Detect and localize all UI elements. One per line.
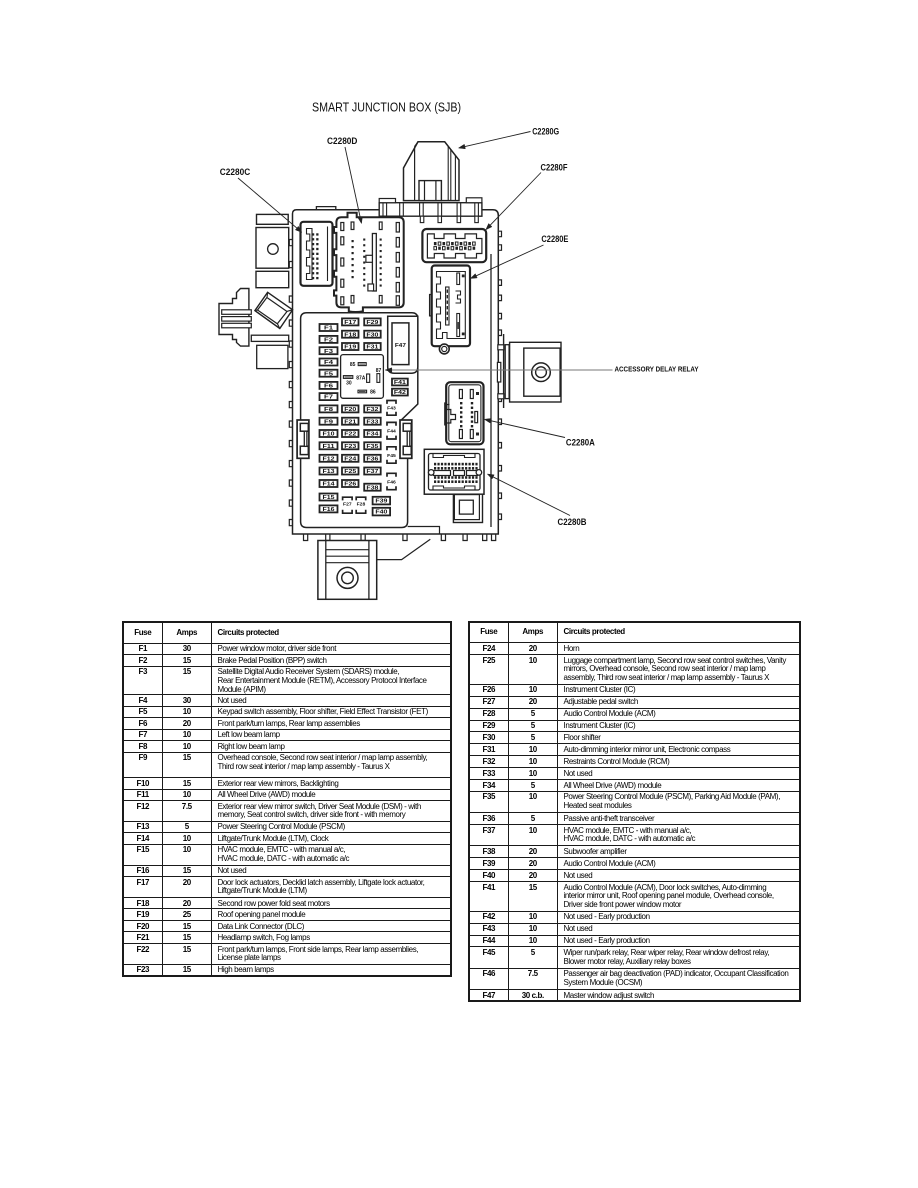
svg-text:F11: F11 — [323, 444, 335, 450]
svg-text:C2280E: C2280E — [541, 234, 568, 245]
svg-text:C2280G: C2280G — [532, 126, 559, 137]
svg-text:F41: F41 — [394, 380, 406, 386]
svg-text:F29: F29 — [366, 320, 378, 326]
svg-text:F44: F44 — [387, 429, 396, 434]
svg-text:F18: F18 — [344, 332, 356, 338]
svg-text:F20: F20 — [344, 407, 356, 413]
svg-text:87A: 87A — [356, 375, 366, 381]
svg-text:F1: F1 — [324, 326, 333, 332]
svg-text:F13: F13 — [323, 469, 335, 475]
svg-text:F34: F34 — [366, 432, 379, 438]
svg-text:C2280C: C2280C — [220, 167, 251, 178]
svg-text:ACCESSORY DELAY RELAY: ACCESSORY DELAY RELAY — [615, 364, 699, 373]
svg-text:C2280F: C2280F — [541, 163, 568, 174]
svg-text:F4: F4 — [324, 360, 334, 366]
svg-text:F26: F26 — [344, 482, 356, 488]
svg-text:F45: F45 — [387, 453, 396, 458]
svg-text:85: 85 — [350, 362, 356, 368]
svg-text:F28: F28 — [357, 502, 366, 507]
svg-text:F25: F25 — [344, 469, 356, 475]
svg-text:F19: F19 — [344, 345, 356, 351]
svg-text:F12: F12 — [323, 456, 335, 462]
svg-text:F9: F9 — [324, 419, 333, 425]
svg-text:F31: F31 — [366, 345, 378, 351]
svg-text:F14: F14 — [323, 482, 336, 488]
svg-text:F16: F16 — [323, 507, 335, 513]
svg-text:C2280B: C2280B — [558, 517, 587, 528]
svg-text:F10: F10 — [323, 432, 335, 438]
svg-text:F39: F39 — [375, 499, 387, 505]
svg-text:86: 86 — [370, 390, 376, 396]
svg-text:F3: F3 — [324, 349, 333, 355]
svg-text:30: 30 — [346, 381, 352, 387]
svg-text:F30: F30 — [366, 332, 378, 338]
svg-text:F42: F42 — [394, 390, 406, 396]
svg-text:C2280A: C2280A — [566, 437, 595, 448]
svg-text:F6: F6 — [324, 384, 333, 390]
svg-text:87: 87 — [376, 368, 382, 374]
svg-text:F24: F24 — [344, 456, 357, 462]
svg-text:SMART JUNCTION BOX (SJB): SMART JUNCTION BOX (SJB) — [312, 100, 461, 115]
svg-text:F33: F33 — [366, 419, 378, 425]
svg-text:F43: F43 — [387, 406, 396, 411]
svg-text:F32: F32 — [366, 407, 378, 413]
svg-text:F35: F35 — [366, 444, 378, 450]
svg-text:F40: F40 — [375, 510, 387, 516]
svg-text:F46: F46 — [387, 479, 396, 484]
svg-text:F47: F47 — [395, 343, 406, 349]
svg-text:F8: F8 — [324, 407, 333, 413]
svg-text:F36: F36 — [366, 456, 378, 462]
svg-text:F38: F38 — [366, 485, 378, 491]
svg-text:F22: F22 — [344, 432, 356, 438]
svg-text:F15: F15 — [323, 495, 335, 501]
svg-text:F17: F17 — [344, 320, 356, 326]
svg-text:F27: F27 — [343, 502, 352, 507]
svg-text:F2: F2 — [324, 338, 333, 344]
svg-text:F7: F7 — [324, 395, 333, 401]
svg-text:F5: F5 — [324, 371, 333, 377]
svg-text:F21: F21 — [344, 419, 356, 425]
svg-text:C2280D: C2280D — [327, 136, 358, 147]
svg-text:F37: F37 — [366, 469, 378, 475]
svg-text:F23: F23 — [344, 444, 356, 450]
